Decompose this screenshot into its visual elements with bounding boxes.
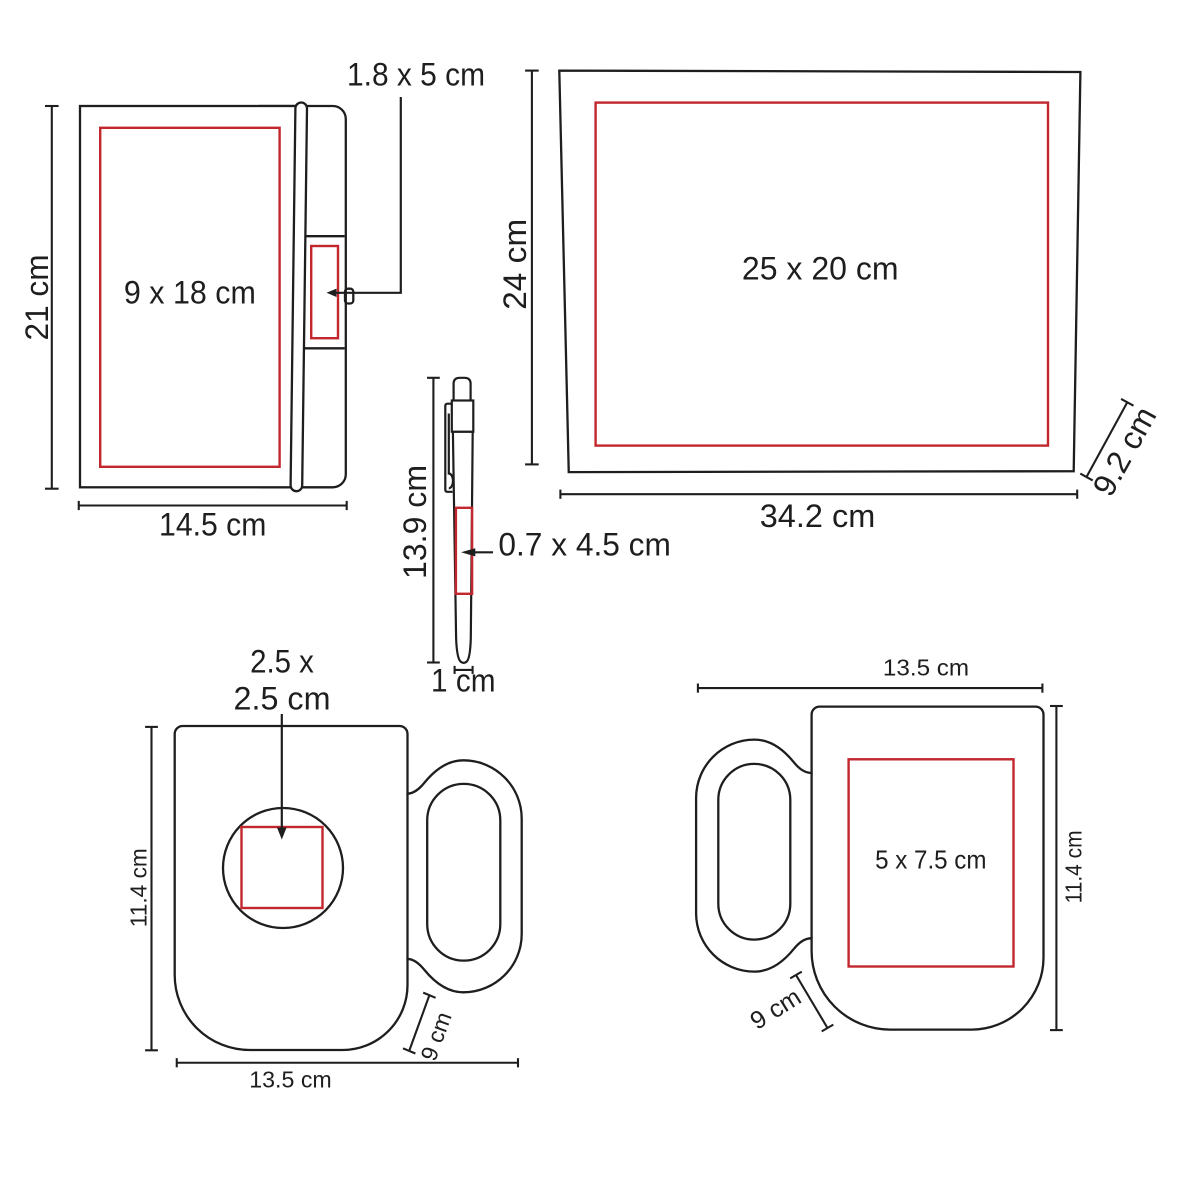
svg-text:11.4 cm: 11.4 cm: [125, 848, 151, 927]
svg-text:0.7 x 4.5 cm: 0.7 x 4.5 cm: [498, 527, 671, 563]
svg-text:1.8 x 5 cm: 1.8 x 5 cm: [347, 56, 485, 92]
svg-text:1 cm: 1 cm: [431, 663, 496, 699]
svg-text:2.5 cm: 2.5 cm: [234, 680, 331, 716]
svg-text:2.5 x: 2.5 x: [250, 644, 314, 680]
svg-text:34.2 cm: 34.2 cm: [760, 498, 876, 534]
svg-text:24 cm: 24 cm: [497, 219, 533, 310]
svg-text:11.4 cm: 11.4 cm: [1061, 830, 1087, 903]
svg-text:5 x 7.5 cm: 5 x 7.5 cm: [875, 845, 986, 875]
svg-text:25 x 20 cm: 25 x 20 cm: [742, 250, 899, 286]
svg-text:9 x 18 cm: 9 x 18 cm: [124, 275, 256, 311]
svg-text:13.5 cm: 13.5 cm: [883, 655, 969, 681]
svg-text:21 cm: 21 cm: [19, 255, 55, 341]
svg-text:13.5 cm: 13.5 cm: [249, 1067, 332, 1093]
svg-text:13.9 cm: 13.9 cm: [397, 465, 433, 579]
svg-text:14.5 cm: 14.5 cm: [159, 506, 266, 542]
